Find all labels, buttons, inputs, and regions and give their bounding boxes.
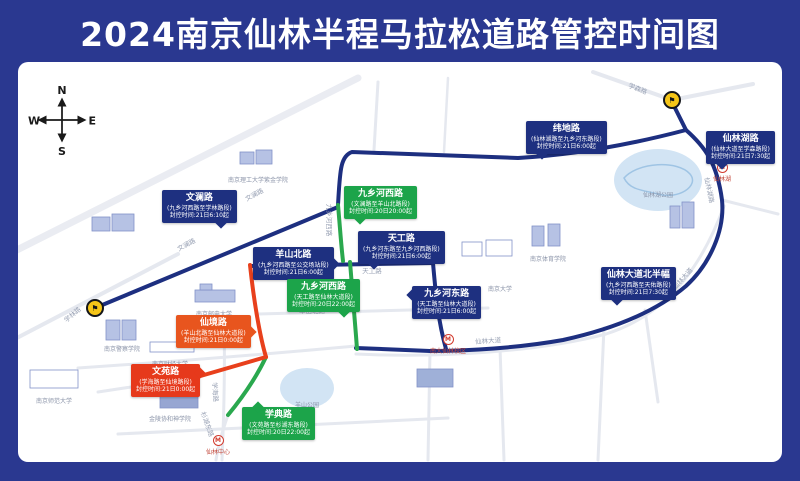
- control-label-text: 封控时间:21日6:00起: [363, 253, 440, 261]
- metro-station-name: 南大仙林校区: [430, 346, 466, 355]
- route-marker: ⚑: [663, 91, 681, 109]
- control-label-text: 封控时间:21日6:10起: [167, 212, 232, 220]
- control-label-text: 仙境路: [181, 318, 246, 330]
- control-label-text: 封控时间:20日22:00起: [247, 429, 310, 437]
- metro-station: M南大仙林校区: [430, 334, 466, 355]
- control-label: 仙林大道北半幅(九乡河西路至天佑路段)封控时间:21日7:30起: [601, 267, 676, 300]
- control-label-text: 九乡河西路: [349, 189, 412, 201]
- poster-title: 2024南京仙林半程马拉松道路管控时间图: [0, 8, 800, 56]
- control-label: 九乡河西路(天工路至仙林大道段)封控时间:20日22:00起: [287, 279, 360, 312]
- control-label-text: 封控时间:20日22:00起: [292, 301, 355, 309]
- control-label-text: 封控时间:21日0:00起: [136, 386, 195, 394]
- control-label-text: 九乡河西路: [292, 282, 355, 294]
- map-canvas: N S W E 文澜路(九乡河西路至学林路段)封控时间:21日6:10起九乡河西…: [18, 62, 782, 462]
- compass-north-label: N: [57, 84, 66, 97]
- control-label-text: 学典路: [247, 410, 310, 422]
- control-label: 仙林湖路(仙林大道至学森路段)封控时间:21日7:30起: [706, 131, 775, 164]
- control-label-text: 仙林大道北半幅: [606, 270, 671, 282]
- metro-icon: M: [212, 435, 223, 446]
- metro-station-name: 仙林湖: [713, 174, 731, 183]
- poi-label: 南京理工大学紫金学院: [228, 175, 288, 184]
- control-label-text: 天工路: [363, 234, 440, 246]
- control-label: 纬地路(仙林湖路至九乡河东路段)封控时间:21日6:00起: [526, 121, 607, 154]
- control-label-text: 文苑路: [136, 367, 195, 379]
- control-label: 天工路(九乡河东路至九乡河西路段)封控时间:21日6:00起: [358, 231, 445, 264]
- control-label-text: 封控时间:21日6:00起: [417, 308, 476, 316]
- control-label-text: 封控时间:21日7:30起: [711, 153, 770, 161]
- control-label-text: 封控时间:20日20:00起: [349, 208, 412, 216]
- control-label: 学典路(文苑路至杉湖东路段)封控时间:20日22:00起: [242, 407, 315, 440]
- control-label-text: 文澜路: [167, 193, 232, 205]
- poster-frame: 2024南京仙林半程马拉松道路管控时间图: [0, 0, 800, 481]
- grey-roads-layer: [18, 72, 778, 460]
- control-label-text: 仙林湖路: [711, 134, 770, 146]
- poi-label: 南京大学: [488, 284, 512, 293]
- route-marker: ⚑: [86, 299, 104, 317]
- metro-station: M仙林中心: [206, 435, 230, 456]
- control-label: 文苑路(学海路至仙境路段)封控时间:21日0:00起: [131, 364, 200, 397]
- control-label-text: 封控时间:21日7:30起: [606, 289, 671, 297]
- poi-label: 南京警察学院: [104, 344, 140, 353]
- control-label-text: 羊山北路: [258, 250, 329, 262]
- compass-rose: N S W E: [30, 86, 94, 156]
- control-label: 文澜路(九乡河西路至学林路段)封控时间:21日6:10起: [162, 190, 237, 223]
- control-label-text: 纬地路: [531, 124, 602, 136]
- control-label: 羊山北路(九乡河西路至公交场站段)封控时间:21日6:00起: [253, 247, 334, 280]
- compass-east-label: E: [88, 115, 96, 128]
- control-label-text: 封控时间:21日0:00起: [181, 337, 246, 345]
- control-label: 仙境路(羊山北路至仙林大道段)封控时间:21日0:00起: [176, 315, 251, 348]
- control-label: 九乡河东路(天工路至仙林大道段)封控时间:21日6:00起: [412, 286, 481, 319]
- control-label: 九乡河西路(文澜路至羊山北路段)封控时间:20日20:00起: [344, 186, 417, 219]
- control-label-text: 封控时间:21日6:00起: [531, 143, 602, 151]
- road-name-label: 仙林大道: [475, 334, 502, 346]
- poi-label: 金陵协和神学院: [149, 414, 191, 423]
- road-name-label: 学海路: [210, 382, 221, 402]
- poi-label: 南京师范大学: [36, 396, 72, 405]
- metro-icon: M: [442, 334, 453, 345]
- poi-label: 仙林湖公园: [643, 190, 673, 199]
- compass-south-label: S: [58, 145, 66, 158]
- compass-west-label: W: [28, 115, 40, 128]
- road-name-label: 九乡河西路: [325, 204, 335, 237]
- control-label-text: 封控时间:21日6:00起: [258, 269, 329, 277]
- metro-station-name: 仙林中心: [206, 447, 230, 456]
- control-label-text: 九乡河东路: [417, 289, 476, 301]
- route-blue: [95, 104, 722, 351]
- poi-label: 南京体育学院: [530, 254, 566, 263]
